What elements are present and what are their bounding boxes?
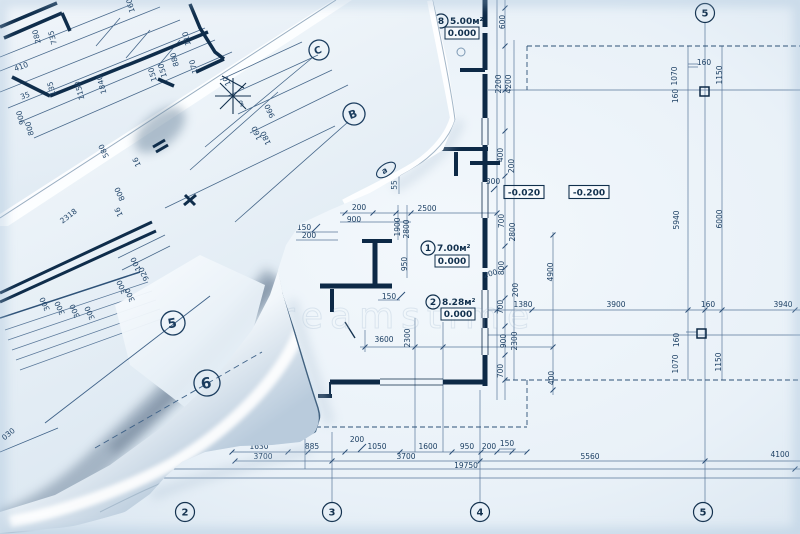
dimension-label: 950 — [460, 442, 475, 451]
dimension-label: 19750 — [454, 461, 478, 470]
dimension-label: 800 — [497, 261, 506, 276]
blueprint-photo: dreamstime 60022004200400200300700280080… — [0, 0, 800, 534]
dimension-label: 4900 — [546, 262, 555, 281]
dimension-label: 1070 — [671, 354, 680, 373]
dimension-label: 4100 — [770, 450, 789, 459]
dimension-label: 200 — [511, 283, 520, 298]
dimension-label: 1150 — [714, 352, 723, 371]
room-area: 5.00м² — [450, 17, 484, 27]
room-area: 8.28м² — [442, 298, 476, 308]
room-level: 0.000 — [444, 310, 472, 320]
dimension-label: 700 — [496, 364, 505, 379]
dimension-label: 2200 — [494, 74, 503, 93]
dimension-label: 1380 — [513, 300, 532, 309]
room-number: 1 — [425, 244, 431, 254]
grid-bubble-label: 5 — [700, 508, 707, 519]
dimension-label: 160 — [672, 333, 681, 348]
dimension-label: 2800 — [402, 219, 411, 238]
dimension-label: 600 — [498, 15, 507, 30]
dimension-label: 2800 — [508, 222, 517, 241]
elevation-value: -0.020 — [508, 189, 540, 199]
dimension-label: 200 — [352, 203, 367, 212]
dimension-label: 160 — [701, 300, 716, 309]
dimension-label: 5560 — [580, 452, 599, 461]
dimension-label: 900 — [499, 334, 508, 349]
room-number: 2 — [430, 298, 436, 308]
dimension-label: 3600 — [374, 335, 393, 344]
dimension-label: 200 — [350, 435, 365, 444]
room-level: 0.000 — [438, 257, 466, 267]
dimension-label: 950 — [400, 257, 409, 272]
dimension-label: 700 — [496, 300, 505, 315]
blueprint-photo-stage: dreamstime 60022004200400200300700280080… — [0, 0, 800, 534]
dimension-label: 400 — [547, 371, 556, 386]
grid-bubble-label: 2 — [182, 508, 189, 519]
dimension-label: 1050 — [367, 442, 386, 451]
dimension-label: 1070 — [670, 66, 679, 85]
dimension-label: 1150 — [715, 65, 724, 84]
dimension-label: 2500 — [417, 204, 436, 213]
dimension-label: 150 — [382, 292, 397, 301]
dimension-label: 700 — [497, 214, 506, 229]
room-level: 0.000 — [448, 29, 476, 39]
dimension-label: 200 — [302, 231, 317, 240]
dimension-label: 160 — [671, 89, 680, 104]
dimension-label: 150 — [500, 439, 515, 448]
dimension-label: 2300 — [510, 331, 519, 350]
dimension-label: 2300 — [403, 328, 412, 347]
dimension-label: 3700 — [396, 452, 415, 461]
dimension-label: 5940 — [672, 210, 681, 229]
grid-bubble-label: 5 — [702, 9, 709, 20]
dimension-label: 3900 — [606, 300, 625, 309]
dimension-label: 160 — [697, 58, 712, 67]
room-area: 7.00м² — [437, 244, 471, 254]
grid-bubble-label: 3 — [329, 508, 336, 519]
dimension-label: 3940 — [773, 300, 792, 309]
dimension-label: 200 — [482, 442, 497, 451]
dimension-label: 6000 — [715, 209, 724, 228]
dimension-label: 1600 — [418, 442, 437, 451]
elevation-value: -0.200 — [573, 189, 605, 199]
grid-bubble-label: 4 — [477, 508, 484, 519]
dimension-label: 4200 — [504, 74, 513, 93]
dimension-label: 300 — [486, 177, 501, 186]
dimension-label: 1900 — [393, 217, 402, 236]
dimension-label: 900 — [347, 215, 362, 224]
dimension-label: 400 — [496, 148, 505, 163]
dimension-label: 200 — [507, 159, 516, 174]
